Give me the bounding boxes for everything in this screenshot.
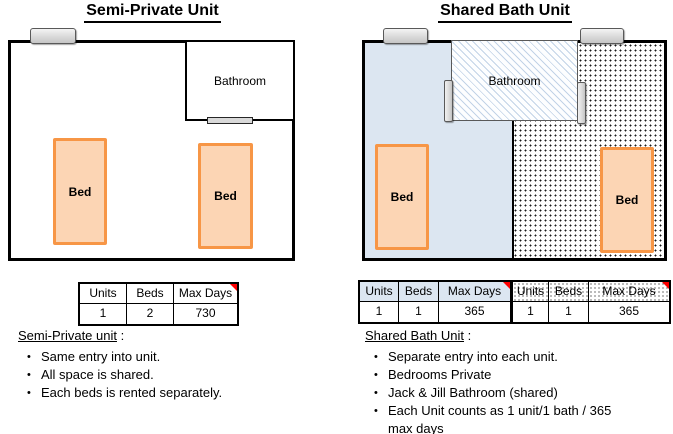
bullet-icon: • xyxy=(374,384,388,402)
bed-unit-a: Bed xyxy=(375,144,429,250)
table-value-beds: 2 xyxy=(127,304,174,324)
list-item: • Jack & Jill Bathroom (shared) xyxy=(365,384,665,402)
bed-label: Bed xyxy=(616,193,639,207)
entry-door-icon xyxy=(30,28,76,44)
bathroom-door-b-icon xyxy=(577,82,586,124)
shared-bath-table: Units Beds Max Days Units Beds Max Days … xyxy=(358,280,671,324)
bullet-icon: • xyxy=(374,348,388,366)
bed-unit-b: Bed xyxy=(600,147,654,253)
comment-indicator-icon xyxy=(503,282,510,289)
unit-divider-wall xyxy=(512,120,514,258)
table-value-beds-a: 1 xyxy=(399,302,439,322)
bathroom-door-a-icon xyxy=(444,80,453,122)
bathroom-label: Bathroom xyxy=(214,74,266,88)
notes-heading: Shared Bath Unit : xyxy=(365,327,665,344)
comment-indicator-icon xyxy=(662,282,669,289)
table-value-units-a: 1 xyxy=(360,302,399,322)
table-header-maxdays-a: Max Days xyxy=(439,282,511,302)
bullet-icon: • xyxy=(27,348,41,366)
list-item: • Same entry into unit. xyxy=(18,348,328,366)
table-header-maxdays-b: Max Days xyxy=(589,282,669,302)
bullet-icon: • xyxy=(27,366,41,384)
semi-private-notes: Semi-Private unit : • Same entry into un… xyxy=(18,327,328,402)
semi-private-title: Semi-Private Unit xyxy=(8,2,297,23)
table-value-units-b: 1 xyxy=(511,302,549,322)
bullet-icon: • xyxy=(374,366,388,384)
bathroom-label: Bathroom xyxy=(488,74,540,88)
shared-bath-title-text: Shared Bath Unit xyxy=(438,2,572,23)
table-value-maxdays-b: 365 xyxy=(589,302,669,322)
list-item: • All space is shared. xyxy=(18,366,328,384)
floorplan-comparison-page: Semi-Private Unit Bathroom Bed Bed Units… xyxy=(0,0,673,434)
table-value-maxdays-a: 365 xyxy=(439,302,511,322)
bed-right: Bed xyxy=(198,143,253,249)
semi-private-bathroom: Bathroom xyxy=(185,40,295,121)
table-header-units: Units xyxy=(80,284,127,304)
list-item: • Each Unit counts as 1 unit/1 bath / 36… xyxy=(365,402,665,434)
semi-private-title-text: Semi-Private Unit xyxy=(84,2,220,23)
bullet-icon: • xyxy=(27,384,41,402)
list-item: • Each beds is rented separately. xyxy=(18,384,328,402)
table-value-maxdays: 730 xyxy=(174,304,237,324)
bathroom-door-icon xyxy=(207,117,253,124)
entry-door-unit-a-icon xyxy=(383,28,428,44)
semi-private-table: Units Beds Max Days 1 2 730 xyxy=(78,282,239,326)
list-item: • Separate entry into each unit. xyxy=(365,348,665,366)
bed-label: Bed xyxy=(214,189,237,203)
table-header-beds-b: Beds xyxy=(549,282,589,302)
table-header-units-b: Units xyxy=(511,282,549,302)
table-header-maxdays: Max Days xyxy=(174,284,237,304)
bed-left: Bed xyxy=(53,138,107,245)
bullet-icon: • xyxy=(374,402,388,434)
list-item: • Bedrooms Private xyxy=(365,366,665,384)
table-value-beds-b: 1 xyxy=(549,302,589,322)
comment-indicator-icon xyxy=(230,284,237,291)
bed-label: Bed xyxy=(69,185,92,199)
shared-bath-title: Shared Bath Unit xyxy=(360,2,650,23)
table-header-beds-a: Beds xyxy=(399,282,439,302)
bed-label: Bed xyxy=(391,190,414,204)
notes-heading: Semi-Private unit : xyxy=(18,327,328,344)
table-header-units-a: Units xyxy=(360,282,399,302)
shared-bath-notes: Shared Bath Unit : • Separate entry into… xyxy=(365,327,665,434)
entry-door-unit-b-icon xyxy=(580,28,624,44)
table-header-beds: Beds xyxy=(127,284,174,304)
shared-bathroom: Bathroom xyxy=(451,40,578,121)
table-value-units: 1 xyxy=(80,304,127,324)
